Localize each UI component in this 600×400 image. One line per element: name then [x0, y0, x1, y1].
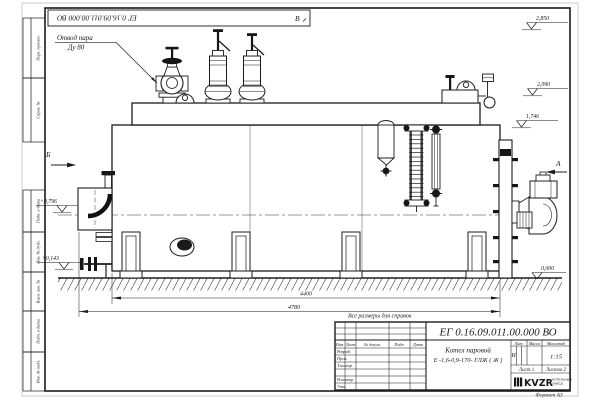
burner-unit	[512, 172, 557, 234]
svg-text:2,850: 2,850	[536, 16, 549, 22]
margin-col-vzam-inv: Взам. инв. №	[36, 280, 41, 304]
drum-top-band	[132, 103, 480, 125]
support-leg	[466, 232, 488, 278]
view-label-v: В	[295, 14, 300, 23]
callout-text-line1: Отвод пара	[57, 34, 93, 42]
lit-header: Лит.	[513, 341, 523, 346]
col-docnum: № докум.	[363, 342, 381, 347]
view-label-a: А	[555, 159, 561, 168]
safety-valve-1	[205, 29, 231, 103]
safety-valve-lever	[219, 41, 230, 51]
margin-col-perv-primen: Перв. примен.	[36, 35, 41, 61]
margin-col-inv-dubl: Инв. № дубл.	[36, 240, 41, 264]
col-list: Лист	[345, 342, 356, 347]
front-smoke-box	[78, 188, 112, 230]
view-label-b: Б	[45, 150, 51, 159]
scale-value: 1:15	[550, 354, 563, 361]
elevation-2850: 2,850	[522, 16, 568, 30]
sheet-number: Лист 1	[518, 368, 534, 373]
elevation-2090: 2,090	[523, 82, 568, 96]
water-level-glass	[430, 126, 442, 207]
view-arrow-b	[67, 163, 76, 168]
dimension-4780: 4780	[79, 304, 500, 313]
ground-line	[58, 278, 562, 291]
product-name: Котел паровой	[444, 347, 491, 355]
mass-header: Масса	[528, 341, 541, 346]
col-data: Дата	[412, 342, 423, 347]
support-leg	[120, 232, 142, 278]
dimension-4400: 4400	[112, 291, 500, 300]
top-designation-stamp: ЕГ 0.16.09.011.00.000 ВО	[48, 10, 310, 26]
view-marker-b: Б	[45, 150, 76, 167]
lifting-lug-right	[457, 81, 475, 90]
row-razrab: Разраб.	[336, 349, 351, 354]
fan-volute	[529, 197, 557, 234]
manhole	[170, 238, 194, 256]
row-utv: Утв.	[337, 384, 346, 389]
elevation-1746: 1,746	[512, 113, 558, 128]
elevation-0000: 0,000	[532, 266, 566, 279]
dim-text-4780: 4780	[288, 304, 300, 311]
burner-motor	[530, 181, 557, 198]
col-izm: Изм.	[335, 342, 344, 347]
margin-col-podp-data-2: Подп. и дата	[36, 319, 41, 345]
steam-header-box	[442, 90, 478, 103]
sheets-total: Листов 2	[545, 368, 567, 373]
designation-text: ЕГ 0.16.09.011.00.000 ВО	[438, 327, 556, 339]
logo-text: KVZR	[524, 378, 554, 389]
product-model: Е -1,6-0,9-170- ГЛЖ ( Ж )	[433, 357, 503, 364]
margin-col-sprav-no: Справ. №	[36, 101, 41, 118]
svg-text:2,090: 2,090	[537, 82, 550, 88]
blowdown-valve	[80, 257, 112, 277]
svg-text:+0,796: +0,796	[40, 199, 57, 205]
view-marker-a: А	[546, 159, 567, 174]
left-flange-pair	[96, 233, 112, 242]
view-marker-v: В	[295, 14, 306, 23]
support-leg	[340, 232, 362, 278]
svg-text:+0,143: +0,143	[42, 255, 59, 262]
dim-text-4400: 4400	[300, 291, 312, 298]
lit-value: И	[510, 353, 516, 359]
format-label: Формат А3	[535, 393, 563, 399]
header-box-valve	[446, 75, 455, 90]
support-leg	[230, 232, 252, 278]
scale-header: Масштаб	[546, 341, 566, 346]
steam-outlet-callout: Отвод пара Ду 80	[55, 34, 157, 83]
boiler-general-view-drawing: Перв. примен. Справ. № Подп. и дата Инв.…	[0, 0, 600, 400]
blowdown-handwheel	[80, 258, 84, 270]
drawing-sheet: Перв. примен. Справ. № Подп. и дата Инв.…	[0, 0, 600, 400]
row-prov: Пров.	[336, 356, 348, 361]
rotated-designation-text: ЕГ 0.16.09.011.00.000 ВО	[57, 14, 138, 23]
reference-note: Все размеры для справок	[348, 313, 412, 320]
row-tkontr: Т.контр.	[337, 363, 353, 368]
title-block: ЕГ 0.16.09.011.00.000 ВО Изм. Лист № док…	[335, 322, 572, 390]
margin-col-inv-podl: Инв. № подл.	[36, 360, 41, 385]
svg-text:0,000: 0,000	[541, 266, 554, 272]
company-line2: ЗАВОД	[552, 382, 563, 386]
safety-valve-2	[239, 33, 265, 103]
row-nkontr: Н.контр.	[336, 377, 354, 382]
svg-text:1,746: 1,746	[526, 113, 539, 120]
col-podp: Подп.	[393, 342, 404, 347]
view-arrow-a	[546, 170, 555, 175]
callout-text-line2: Ду 80	[67, 44, 85, 52]
elevation-0796: +0,796	[36, 199, 78, 213]
